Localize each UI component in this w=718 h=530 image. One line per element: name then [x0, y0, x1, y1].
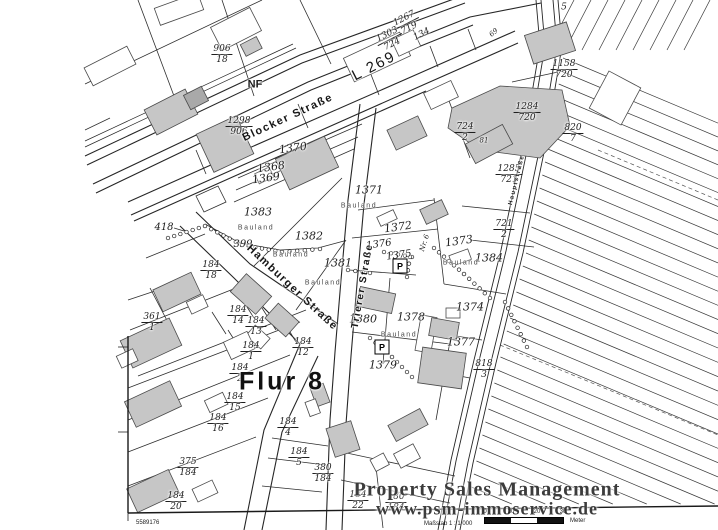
scale-tick-label: 20	[534, 509, 541, 515]
scale-bar	[484, 517, 564, 524]
scale-unit: Meter	[570, 518, 585, 524]
field-hatch-layer	[471, 0, 718, 504]
scale-tick-label: 0	[483, 509, 486, 515]
scale-tick-label: 30	[560, 509, 567, 515]
map-canvas	[0, 0, 718, 530]
flur-label: Flur 8	[239, 370, 325, 395]
boundary-point-chains	[166, 224, 529, 379]
cadastral-map: 9061812989061267719130372411587201284720…	[0, 0, 718, 530]
roads-layer	[85, 0, 562, 530]
scale-tick-label: 10	[508, 509, 515, 515]
parcel-boundaries-layer	[85, 0, 558, 528]
sheet-number: 5589176	[136, 520, 159, 526]
scale-text: Maßstab 1 : 1 000	[424, 521, 472, 527]
